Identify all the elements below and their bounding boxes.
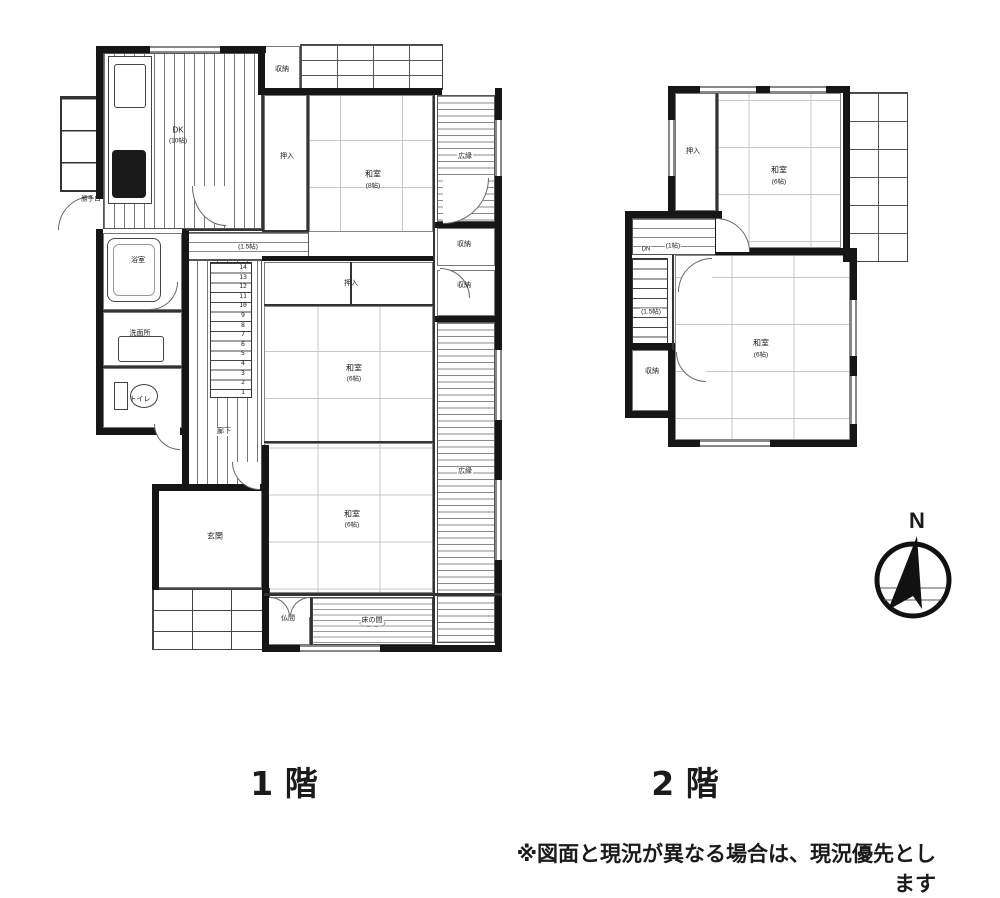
hall-2f-size-label: (1帖) — [665, 242, 681, 249]
floor2-plan: 押入 和室 (6帖) (1帖) DN (1.5帖) 収納 和室 (6帖) — [0, 0, 1000, 690]
window — [850, 300, 857, 356]
storage-2f — [632, 350, 672, 411]
compass-rose-icon — [858, 498, 968, 618]
wall — [843, 86, 850, 262]
wall — [625, 211, 632, 418]
partition — [672, 255, 674, 350]
wall — [625, 211, 672, 218]
wall — [668, 211, 722, 218]
floor2-caption: 2 階 — [615, 757, 755, 797]
window — [668, 120, 675, 176]
tatami-2f-north-size: (6帖) — [772, 178, 786, 185]
stairs-2f-size-label: (1.5帖) — [640, 308, 662, 315]
partition — [716, 93, 718, 211]
window — [700, 86, 756, 93]
disclaimer-note: ※図面と現況が異なる場合は、現況優先とします — [500, 838, 936, 868]
balcony-area — [846, 92, 908, 262]
floor1-caption: 1 階 — [214, 757, 354, 797]
closet-2f-label: 押入 — [685, 148, 701, 156]
tatami-2f-south-label: 和室 — [753, 338, 769, 347]
window — [850, 376, 857, 424]
tatami-2f-south-size: (6帖) — [754, 351, 768, 358]
floor-plan-page: 14 13 12 11 10 9 8 7 6 5 4 3 2 1 — [0, 0, 1000, 898]
window — [700, 440, 770, 447]
staircase-2f — [632, 258, 668, 345]
dn-label: DN — [641, 247, 652, 254]
wall — [668, 348, 675, 447]
window — [770, 86, 826, 93]
storage-2f-label: 収納 — [645, 368, 659, 376]
tatami-2f-north-label: 和室 — [771, 165, 787, 174]
compass: N — [858, 498, 968, 618]
